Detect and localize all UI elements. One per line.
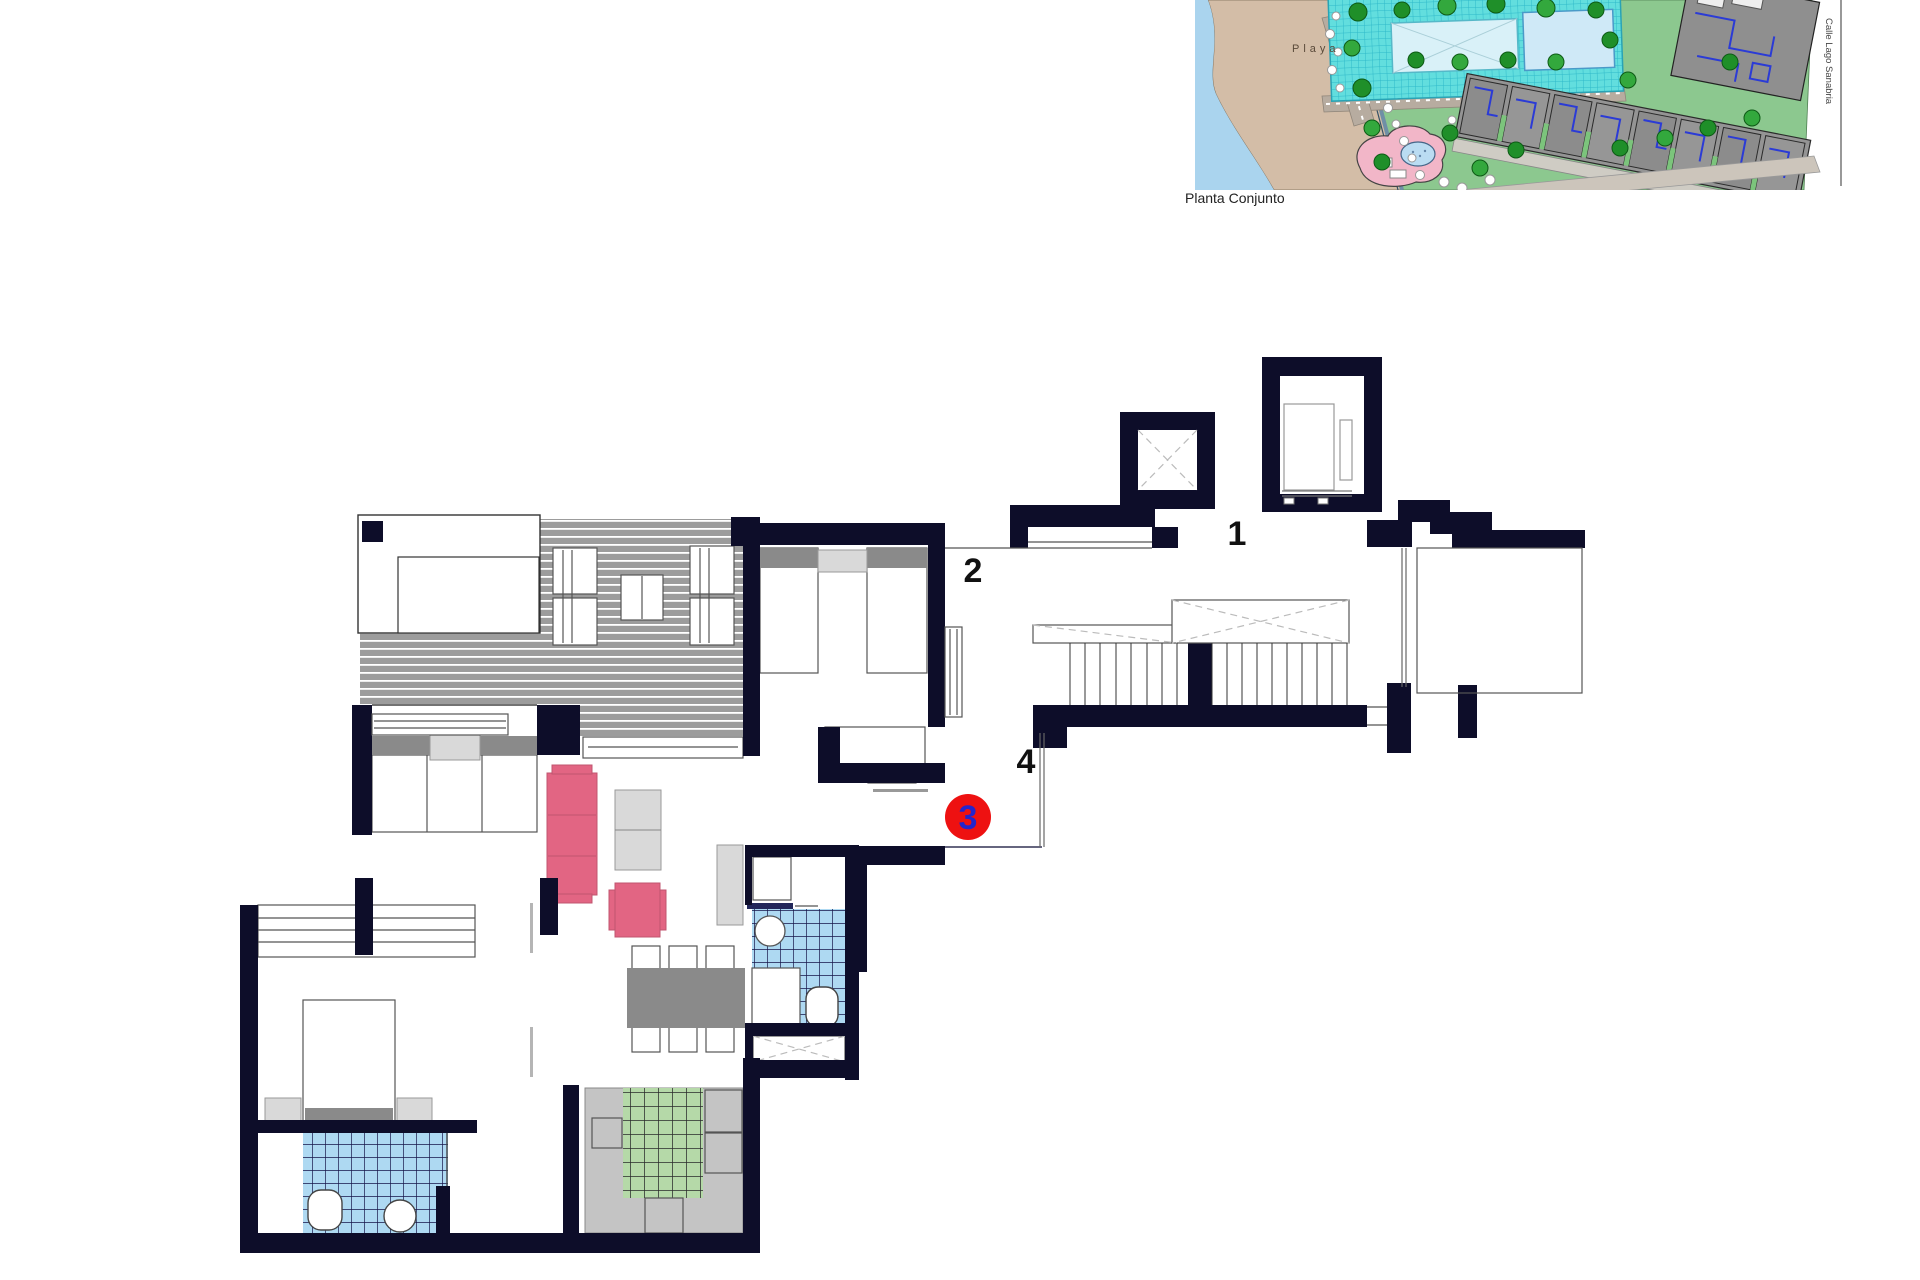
kids-pool: [1401, 142, 1435, 166]
floor-plan: 1 2 4 3: [240, 357, 1585, 1253]
unit-3-label: 3: [959, 799, 978, 837]
hall-closet: [753, 1036, 845, 1062]
unit-2-label: 2: [964, 552, 983, 590]
floorplan-page: Playa Calle Lago Sanabria Planta Conjunt…: [0, 0, 1920, 1280]
kitchen-floor: [623, 1088, 703, 1198]
pool-second-basin: [1523, 9, 1615, 70]
beach-label: Playa: [1292, 43, 1340, 55]
site-plan-caption: Planta Conjunto: [1185, 190, 1285, 206]
shower-tray: [752, 968, 800, 1026]
street-label: Calle Lago Sanabria: [1823, 18, 1834, 105]
unit-4-label: 4: [1017, 743, 1036, 781]
toilet: [806, 987, 838, 1027]
right-terrace: [1417, 548, 1582, 693]
nightstand: [818, 550, 867, 572]
sink: [755, 916, 785, 946]
bedroom-top-furniture: [760, 548, 928, 792]
bedroom-middle-furniture: [372, 731, 537, 832]
cabinet: [717, 845, 743, 925]
plan-drawing: Playa Calle Lago Sanabria Planta Conjunt…: [0, 0, 1920, 1280]
bed: [372, 755, 537, 832]
toilet: [308, 1190, 342, 1230]
elevator: [1280, 376, 1364, 504]
site-plan: Playa Calle Lago Sanabria: [1195, 0, 1841, 218]
unit-3-badge: 3: [945, 794, 991, 840]
sofa: [547, 773, 597, 895]
armchair: [615, 883, 660, 937]
sink: [384, 1200, 416, 1232]
dining-table: [627, 968, 745, 1028]
pergola-post: [362, 521, 383, 542]
terrace-deck-left: [360, 633, 540, 705]
living-room-furniture: [530, 765, 745, 1077]
window-terrace: [372, 705, 537, 735]
washer: [753, 857, 791, 900]
unit-1-label: 1: [1228, 515, 1247, 553]
window-bay: [945, 627, 962, 717]
